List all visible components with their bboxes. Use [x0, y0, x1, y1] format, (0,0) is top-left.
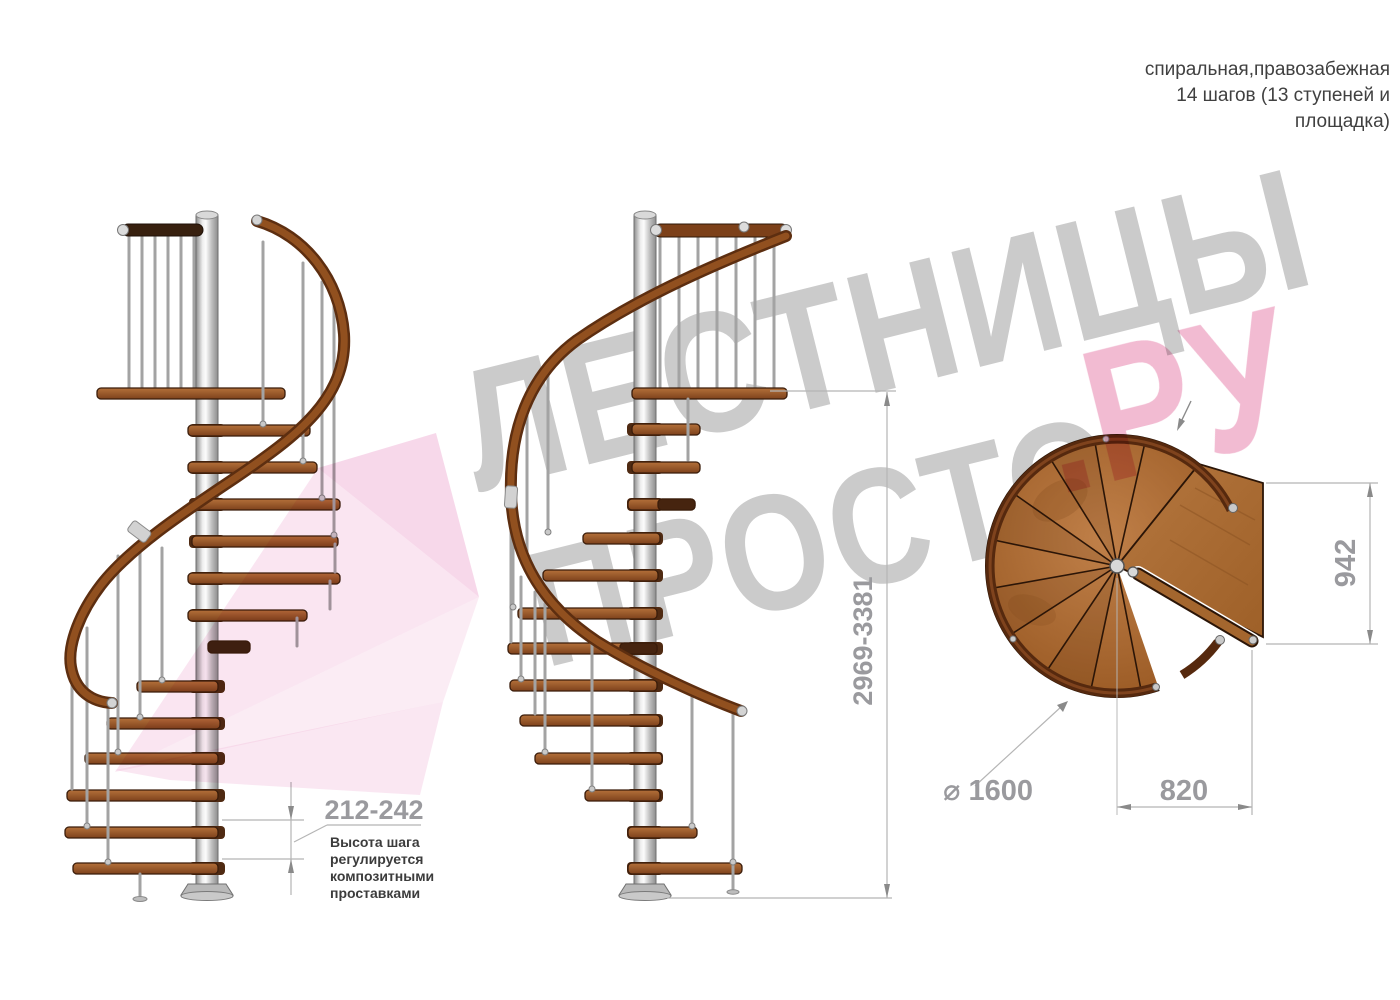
dim-step-height-label: 212-242 [324, 795, 423, 825]
middle-landing-rail [654, 224, 788, 237]
spiral-staircase-drawing: ЛЕСТНИЦЫ ПРОСТО [0, 0, 1400, 1000]
dim-step-note-line1: Высота шага [330, 834, 420, 850]
left-landing-rail [122, 224, 203, 236]
dim-step-note-line4: проставками [330, 885, 420, 901]
left-landing-platform [97, 388, 285, 399]
drawing-title: спиральная,правозабежная 14 шагов (13 ст… [1145, 59, 1390, 132]
middle-landing-platform [632, 388, 787, 399]
dim-step-note-line2: регулируется [330, 851, 423, 867]
dim-entry-width-label: 820 [1160, 775, 1208, 807]
plan-center-pole [1110, 559, 1124, 573]
dim-landing-width-label: 942 [1330, 539, 1362, 587]
title-line3: площадка) [1295, 111, 1390, 132]
title-line1: спиральная,правозабежная [1145, 59, 1390, 80]
title-line2: 14 шагов (13 ступеней и [1176, 85, 1390, 106]
drawing-canvas: ЛЕСТНИЦЫ ПРОСТО [0, 0, 1400, 1000]
dim-total-height-label: 2969-3381 [848, 576, 878, 705]
dim-diameter-label: ⌀ 1600 [943, 775, 1033, 807]
dim-step-note: Высота шага регулируется композитными пр… [330, 834, 434, 901]
dim-step-note-line3: композитными [330, 868, 434, 884]
